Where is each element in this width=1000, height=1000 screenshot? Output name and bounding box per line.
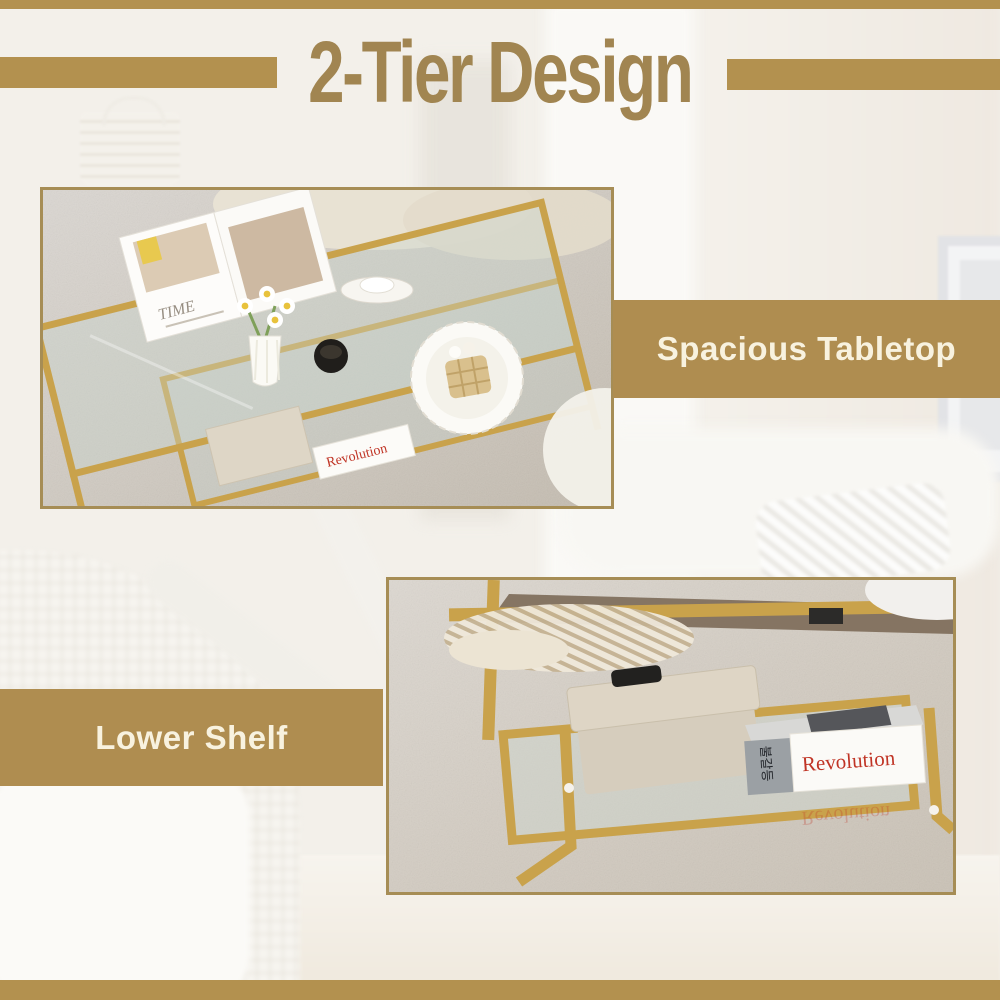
chair-cushion bbox=[0, 770, 250, 1000]
waffle bbox=[444, 354, 492, 399]
page-title-wrap: 2-Tier Design bbox=[250, 22, 750, 122]
lower-shelf-scene: 불갈등 Revolution Revolution bbox=[389, 580, 953, 892]
callout-label-shelf: Lower Shelf bbox=[95, 719, 288, 757]
cream-ball bbox=[449, 346, 461, 358]
callout-label-tabletop: Spacious Tabletop bbox=[657, 330, 956, 368]
tabletop-scene: TIME bbox=[43, 190, 611, 506]
bottom-gold-strip bbox=[0, 980, 1000, 1000]
top-gold-strip bbox=[0, 0, 1000, 9]
throw-fold bbox=[449, 630, 569, 670]
daisy-center bbox=[272, 317, 279, 324]
title-bar-right bbox=[727, 59, 1000, 90]
wicker-basket-handle bbox=[102, 96, 166, 126]
product-infographic: 2-Tier Design bbox=[0, 0, 1000, 1000]
candle-wax bbox=[320, 345, 342, 359]
title-bar-left bbox=[0, 57, 277, 88]
page-title: 2-Tier Design bbox=[308, 22, 691, 123]
callout-band-shelf: Lower Shelf bbox=[0, 689, 383, 786]
screw-cap bbox=[564, 783, 574, 793]
daisy-center bbox=[264, 291, 271, 298]
screw-cap bbox=[929, 805, 939, 815]
photo-spacious-tabletop: TIME bbox=[40, 187, 614, 509]
daisy-center bbox=[242, 303, 249, 310]
dark-caster bbox=[809, 608, 843, 624]
book-spine-glyphs: 불갈등 bbox=[757, 745, 774, 782]
photo-lower-shelf: 불갈등 Revolution Revolution bbox=[386, 577, 956, 895]
fringed-throw bbox=[444, 604, 694, 672]
cup-and-saucer bbox=[341, 277, 413, 303]
daisy-center bbox=[284, 303, 291, 310]
cup bbox=[360, 277, 394, 293]
callout-band-tabletop: Spacious Tabletop bbox=[613, 300, 1000, 398]
cream-ball bbox=[463, 342, 475, 354]
dessert-plate bbox=[411, 322, 523, 434]
